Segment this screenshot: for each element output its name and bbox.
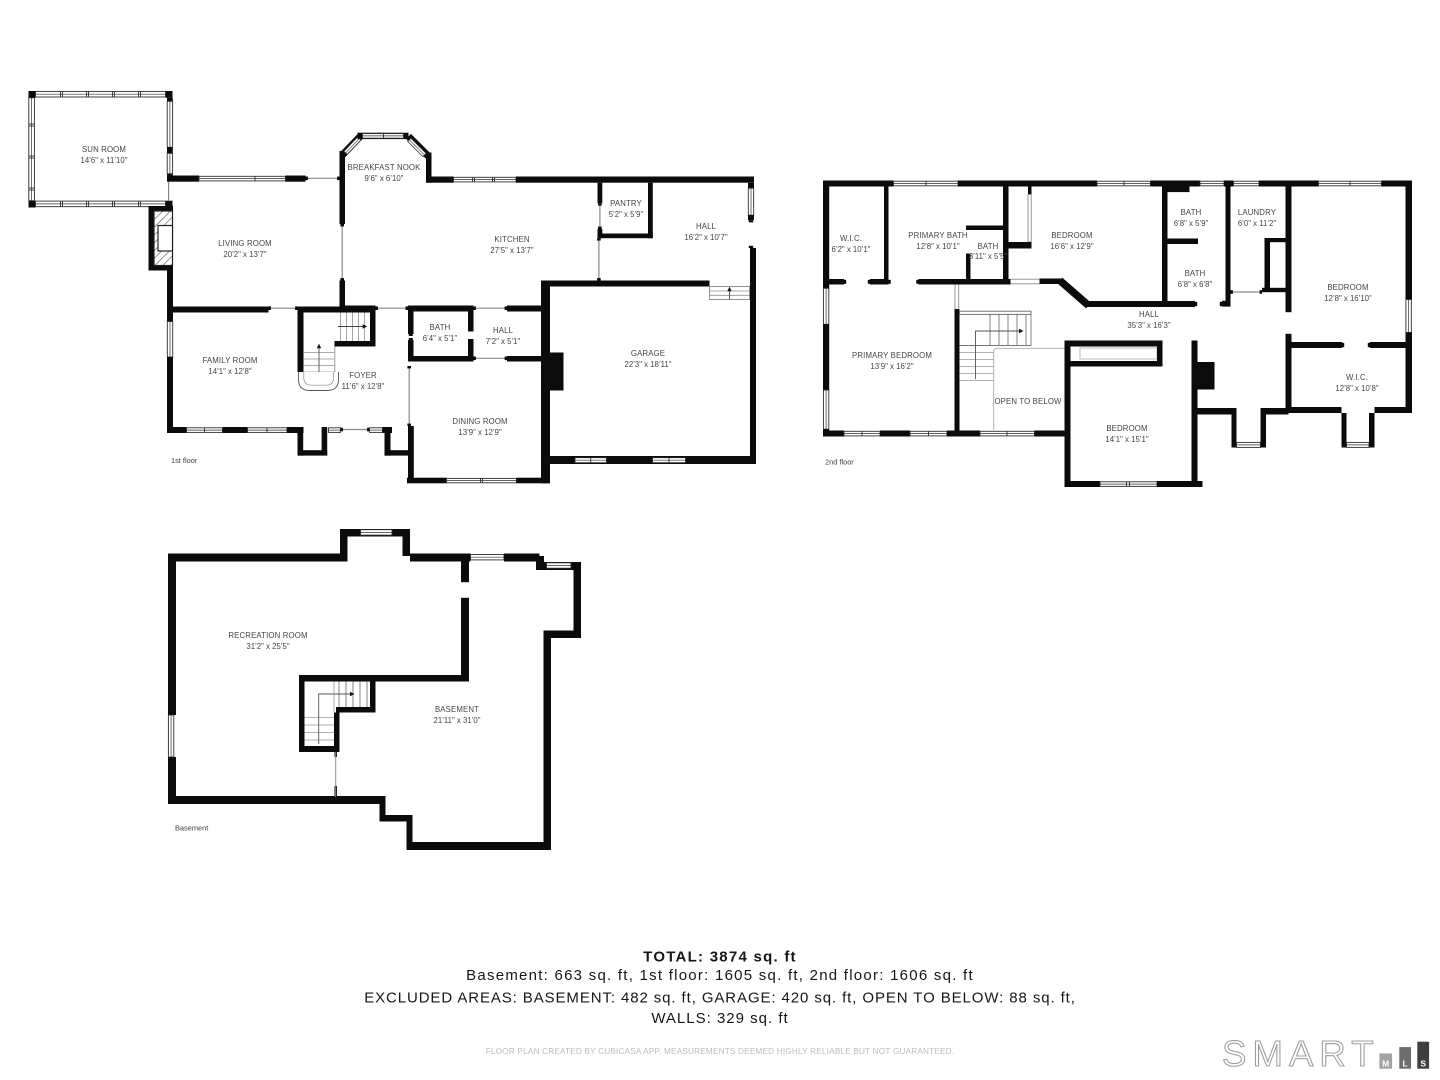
svg-text:S: S [1420,1059,1426,1069]
svg-text:GARAGE: GARAGE [631,349,665,358]
svg-text:20’2" x 13’7": 20’2" x 13’7" [223,250,266,259]
svg-text:14’1" x 12’8": 14’1" x 12’8" [208,367,251,376]
svg-text:FLOOR PLAN CREATED BY CUBICASA: FLOOR PLAN CREATED BY CUBICASA APP. MEAS… [486,1047,954,1056]
svg-text:BEDROOM: BEDROOM [1106,424,1147,433]
svg-text:9’6" x 6’10": 9’6" x 6’10" [365,174,404,183]
svg-text:PRIMARY BEDROOM: PRIMARY BEDROOM [852,351,932,360]
svg-text:BATH: BATH [978,242,999,251]
svg-text:6’4" x 5’1": 6’4" x 5’1" [423,334,458,343]
svg-text:HALL: HALL [493,326,514,335]
svg-text:7’2" x 5’1": 7’2" x 5’1" [486,337,521,346]
svg-text:6’0" x 11’2": 6’0" x 11’2" [1238,219,1277,228]
svg-text:14’6" x 11’10": 14’6" x 11’10" [80,156,127,165]
svg-text:HALL: HALL [1139,310,1160,319]
svg-text:6’2" x 10’1": 6’2" x 10’1" [832,245,871,254]
svg-text:6’8" x 6’8": 6’8" x 6’8" [1178,280,1213,289]
svg-text:M: M [1382,1059,1389,1069]
svg-text:PRIMARY BATH: PRIMARY BATH [908,231,967,240]
svg-text:13’9" x 16’2": 13’9" x 16’2" [870,362,913,371]
svg-text:OPEN TO BELOW: OPEN TO BELOW [994,397,1062,406]
svg-text:21’11" x 31’0": 21’11" x 31’0" [433,716,480,725]
svg-text:12’8" x 10’8": 12’8" x 10’8" [1335,384,1378,393]
svg-text:11’6" x 12’8": 11’6" x 12’8" [342,382,385,391]
svg-text:6’8" x 5’9": 6’8" x 5’9" [1174,219,1209,228]
svg-text:RECREATION ROOM: RECREATION ROOM [228,631,307,640]
svg-text:27’5" x 13’7": 27’5" x 13’7" [490,246,533,255]
svg-text:KITCHEN: KITCHEN [494,235,529,244]
svg-text:WALLS: 329 sq. ft: WALLS: 329 sq. ft [651,1010,788,1027]
svg-text:BATH: BATH [1181,208,1202,217]
svg-text:14’1" x 15’1": 14’1" x 15’1" [1105,435,1148,444]
svg-text:BEDROOM: BEDROOM [1051,231,1092,240]
svg-text:22’3" x 18’11": 22’3" x 18’11" [624,360,671,369]
svg-text:12’8" x 16’10": 12’8" x 16’10" [1324,294,1372,303]
svg-text:BATH: BATH [430,323,451,332]
svg-text:BATH: BATH [1185,269,1206,278]
svg-text:BEDROOM: BEDROOM [1327,283,1368,292]
svg-text:PANTRY: PANTRY [610,199,642,208]
svg-text:L: L [1402,1059,1407,1069]
svg-text:SUN ROOM: SUN ROOM [82,145,126,154]
svg-text:W.I.C.: W.I.C. [840,234,862,243]
svg-text:LIVING ROOM: LIVING ROOM [218,239,272,248]
svg-text:HALL: HALL [696,222,717,231]
svg-text:W.I.C.: W.I.C. [1346,373,1368,382]
svg-text:BASEMENT: BASEMENT [435,705,479,714]
svg-text:35’3" x 16’3": 35’3" x 16’3" [1127,321,1170,330]
svg-text:BREAKFAST NOOK: BREAKFAST NOOK [347,163,421,172]
svg-text:EXCLUDED AREAS: BASEMENT: 482: EXCLUDED AREAS: BASEMENT: 482 sq. ft, GA… [364,990,1076,1007]
svg-text:16’2" x 10’7": 16’2" x 10’7" [684,233,727,242]
svg-text:Basement: Basement [175,824,208,833]
svg-text:31’2" x 25’5": 31’2" x 25’5" [246,642,289,651]
svg-text:2nd floor: 2nd floor [825,458,854,467]
svg-text:LAUNDRY: LAUNDRY [1238,208,1277,217]
svg-text:1st floor: 1st floor [171,456,198,465]
svg-text:13’9" x 12’9": 13’9" x 12’9" [458,428,501,437]
svg-text:TOTAL: 3874 sq. ft: TOTAL: 3874 sq. ft [643,949,797,966]
svg-text:DINING ROOM: DINING ROOM [452,417,507,426]
svg-text:5’2" x 5’9": 5’2" x 5’9" [609,210,644,219]
svg-text:16’6" x 12’9": 16’6" x 12’9" [1050,242,1093,251]
svg-text:Basement: 663 sq. ft, 1st floo: Basement: 663 sq. ft, 1st floor: 1605 sq… [466,967,974,984]
svg-text:FAMILY ROOM: FAMILY ROOM [202,356,257,365]
svg-text:SMART: SMART [1222,1033,1380,1074]
svg-text:FOYER: FOYER [349,371,377,380]
svg-text:12’8" x 10’1": 12’8" x 10’1" [916,242,959,251]
svg-text:3’11" x 5’5": 3’11" x 5’5" [969,252,1008,261]
